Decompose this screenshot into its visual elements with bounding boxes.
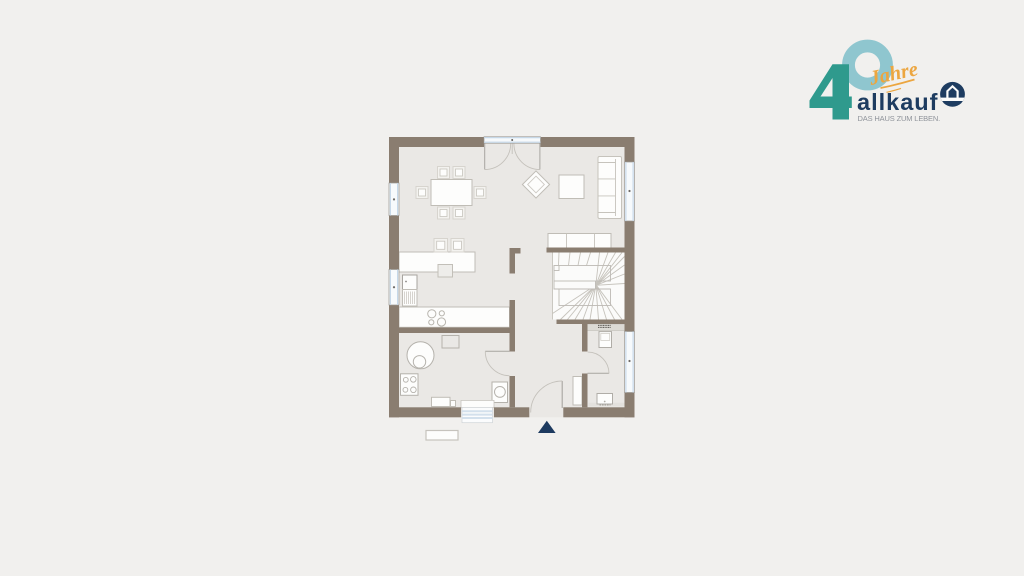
svg-text:DAS HAUS ZUM LEBEN.: DAS HAUS ZUM LEBEN. (858, 114, 941, 123)
svg-text:allkauf: allkauf (857, 89, 938, 115)
